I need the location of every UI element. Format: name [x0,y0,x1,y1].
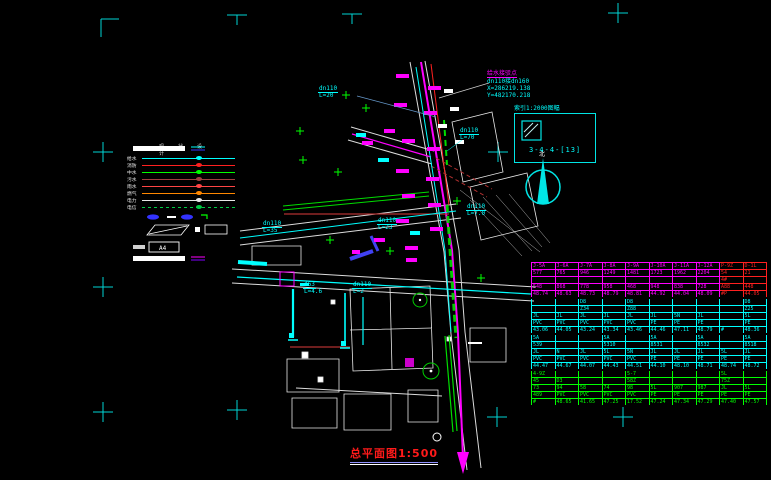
table-cell [673,370,697,378]
map-index-box: 索引1:2000图幅 3-4-4-[13] [514,103,596,163]
table-cell: PE [696,392,720,399]
table-cell [720,298,744,306]
power-cable-glow [350,236,378,259]
table-cell: 48.10 [673,363,697,371]
legend-item: 雨水 [127,183,235,190]
table-cell: A88 [720,284,744,291]
table-cell: 5A [602,334,626,342]
table-row: 5395310853185328518 [532,342,767,349]
buildings [252,112,538,430]
table-cell [720,313,744,320]
table-cell [626,334,650,342]
legend-item-label: 中水 [127,169,142,176]
table-cell: 43.06 [532,327,556,335]
table-cell: J-10A [649,263,673,270]
table-cell: 5L [602,349,626,356]
table-cell: J-12A [696,263,720,270]
table-cell: 5A [743,334,767,342]
legend-symbols: A4 [127,213,235,265]
table-cell: 1249 [602,270,626,277]
table-cell: JL [696,349,720,356]
table-cell [602,378,626,385]
micro-text-blobs [300,74,464,286]
table-cell: 44.92 [649,291,673,299]
table-cell: D8 [743,298,767,306]
table-cell: 5-7 [626,370,650,378]
table-row: 4-9Z5-75L [532,370,767,378]
legend-marker-dot [196,191,202,195]
table-cell: 539 [532,342,556,349]
legend-item-label: 电力 [127,197,142,204]
table-cell [555,298,579,306]
wall-row-icon [133,256,205,261]
table-cell: JL [579,313,603,320]
table-row: 5A5A5A5A5A [532,334,767,342]
node-data-table: J-5AJ-6AJ-7AJ-8AJ-9AJ-10AJ-11AJ-12AP-9ZD… [531,262,767,407]
table-cell: JL [602,313,626,320]
table-cell [720,306,744,313]
table-cell: 44.43 [602,363,626,371]
table-cell: PVC [579,320,603,327]
table-cell: PVC [579,356,603,363]
table-cell [743,370,767,378]
table-cell: 44.07 [579,363,603,371]
table-cell: 5L [743,385,767,392]
table-cell [673,378,697,385]
road-edges [232,61,536,470]
table-cell: 43.24 [579,327,603,335]
legend-item-label: 燃气 [127,190,142,197]
frame-row-icon: A4 [133,242,179,252]
table-cell: 548 [532,284,556,291]
legend-line-swatch [142,193,235,194]
table-cell: PE [743,392,767,399]
table-cell: JL [555,313,579,320]
table-cell [579,370,603,378]
table-cell: 48.81 [626,291,650,299]
table-cell: 47.57 [743,399,767,407]
table-cell: 43.34 [602,327,626,335]
legend-line-swatch [142,172,235,173]
cad-sheet[interactable]: 北 给水接驳点 dn110接dn160 X=286219.138 Y=48217… [0,0,771,480]
table-row: JLJLJLJLJLJL5NJL5L [532,313,767,320]
table-row: PVCPVCPVCPVCPVCPEPEPEPE [532,320,767,327]
table-cell: PVC [626,320,650,327]
table-cell: 8532 [696,342,720,349]
table-row: 548868778958468948838728A88448 [532,284,767,291]
table-cell: PVC [555,392,579,399]
connection-point-title: 给水接驳点 [487,70,517,78]
table-cell: 48.73 [579,291,603,299]
legend-line-swatch [142,179,235,180]
table-cell [579,334,603,342]
table-cell: 58 [579,385,603,392]
table-row: Z34Z88Z25 [532,306,767,313]
table-cell [696,306,720,313]
table-cell: 47.40 [720,399,744,407]
table-cell: 468 [626,284,650,291]
table-cell [743,277,767,284]
table-cell: PVC [579,392,603,399]
table-cell: J-7A [579,263,603,270]
table-cell: JL [673,349,697,356]
legend-item-label: 雨水 [127,183,142,190]
legend-marker-dot [196,205,202,209]
table-cell: 48.72 [743,363,767,371]
table-cell: 47.24 [649,399,673,407]
table-cell [532,298,556,306]
table-cell [579,378,603,385]
legend-item: 消防 [127,162,235,169]
coordinate-x: X=286219.138 [487,85,530,92]
table-cell: PVC [532,356,556,363]
table-row: 73945874985L907987JL5L [532,385,767,392]
ramp-row-icon [147,225,227,235]
drawing-title: 总平面图1:500 [350,445,438,465]
table-cell [579,277,603,284]
table-cell: 448 [743,284,767,291]
drawing-title-text: 总平面图1:500 [350,447,438,460]
table-cell: 44.05 [743,291,767,299]
table-cell: JL [743,349,767,356]
table-cell: 1723 [649,270,673,277]
table-cell: 5A [696,334,720,342]
table-row: 43.0644.0543.2443.3443.4644.4647.1148.79… [532,327,767,335]
table-row: 4# [532,277,767,284]
table-cell: 838 [673,284,697,291]
table-cell: Z34 [579,306,603,313]
table-row: #48.6541.6547.2517.5247.2447.3447.2947.4… [532,399,767,407]
table-cell: 54 [720,270,744,277]
table-cell: PE [696,356,720,363]
table-cell [649,298,673,306]
table-cell: PE [673,320,697,327]
table-cell: 868 [555,284,579,291]
table-cell: 987 [696,385,720,392]
table-cell [602,306,626,313]
table-cell: PE [720,392,744,399]
table-cell [743,378,767,385]
table-cell: 17.52 [626,399,650,407]
legend-road-row [127,143,235,157]
table-cell: 5A [532,334,556,342]
table-cell: 47.25 [602,399,626,407]
table-cell [649,378,673,385]
table-cell: PE [720,356,744,363]
table-cell: # [532,399,556,407]
legend-marker-dot [196,170,202,174]
table-cell: 4# [720,277,744,284]
table-cell [532,306,556,313]
table-cell: N [555,349,579,356]
legend-item: 电力 [127,197,235,204]
legend-item: 电信 [127,204,235,211]
table-cell: PVC [532,320,556,327]
table-cell: 21 [743,270,767,277]
legend: 现状设计 给水消防中水污水雨水燃气电力电信 A4 [127,143,235,265]
legend-marker-dot [196,163,202,167]
legend-item: 燃气 [127,190,235,197]
title-underline-2 [350,464,438,465]
map-index-frame: 3-4-4-[13] [514,113,596,163]
table-cell: J-5A [532,263,556,270]
table-row: 44.4744.6744.0744.4344.5144.1048.1048.71… [532,363,767,371]
table-cell: P-9Z [720,263,744,270]
table-cell: 728 [696,284,720,291]
table-cell [555,342,579,349]
table-cell: JL [532,349,556,356]
legend-item-label: 消防 [127,162,142,169]
table-cell [602,370,626,378]
table-row: JLNJL5L5NJLJLJL5LJL [532,349,767,356]
table-cell: 48.65 [555,399,579,407]
table-cell: 44.47 [532,363,556,371]
table-cell [555,334,579,342]
table-cell: PE [743,320,767,327]
table-cell [555,277,579,284]
table-cell: 8531 [649,342,673,349]
table-cell: PVC [626,356,650,363]
legend-line-swatch [142,200,235,201]
map-index-code: 3-4-4-[13] [529,146,581,154]
title-underline-1 [350,462,438,463]
table-row: 489PVCPVCPVCPVCPEPEPEPEPE [532,392,767,399]
pipe-size-note: dn110接dn160 [487,78,529,85]
table-cell: 48.74 [532,291,556,299]
table-cell: 8518 [743,342,767,349]
table-cell [673,298,697,306]
table-cell: 44.04 [673,291,697,299]
table-cell: 47.29 [696,399,720,407]
table-cell: 5310 [602,342,626,349]
table-cell: 1962 [673,270,697,277]
table-cell: 75Z [720,378,744,385]
table-cell: 47.34 [673,399,697,407]
table-cell: J-6A [555,263,579,270]
table-cell: PVC [602,392,626,399]
table-cell [720,342,744,349]
table-cell [602,277,626,284]
table-cell [649,370,673,378]
legend-item-label: 污水 [127,176,142,183]
slope-hatch [460,190,550,256]
table-cell: PVC [555,356,579,363]
table-cell: 48.74 [720,363,744,371]
table-cell [720,320,744,327]
table-cell [602,298,626,306]
table-cell: D8 [579,298,603,306]
table-cell: PVC [626,392,650,399]
table-cell: 43.46 [626,327,650,335]
table-cell [555,370,579,378]
table-cell [720,334,744,342]
table-cell [673,342,697,349]
table-cell: 48.63 [555,291,579,299]
table-cell: 44.67 [555,363,579,371]
table-cell: 44.10 [649,363,673,371]
table-cell: 489 [532,392,556,399]
table-cell: 958 [602,284,626,291]
legend-marker-dot [196,184,202,188]
table-cell: 48.79 [602,291,626,299]
table-cell: PE [673,356,697,363]
table-cell [649,306,673,313]
legend-line-swatch [142,158,235,159]
legend-item: 污水 [127,176,235,183]
table-cell [696,370,720,378]
table-cell: 5L [720,349,744,356]
node-table-grid: J-5AJ-6AJ-7AJ-8AJ-9AJ-10AJ-11AJ-12AP-9ZD… [531,262,767,407]
table-cell: PE [649,320,673,327]
table-row: 577765946124914811723196222045421 [532,270,767,277]
table-cell: 778 [579,284,603,291]
hatched-square-icon [522,121,541,140]
svg-text:A4: A4 [159,245,167,252]
table-cell: PVC [602,320,626,327]
table-cell: 58Z [626,378,650,385]
legend-marker-dot [196,177,202,181]
table-cell: Z25 [743,306,767,313]
table-cell [696,298,720,306]
coordinate-y: Y=482170.218 [487,92,530,99]
table-row: 45D358Z75Z [532,378,767,385]
table-cell: 4-9Z [532,370,556,378]
table-cell: D8 [626,298,650,306]
table-cell [579,342,603,349]
table-cell [532,277,556,284]
table-cell: JL [720,385,744,392]
manhole-circles [413,293,441,441]
table-cell: PE [649,356,673,363]
table-cell: J-8A [602,263,626,270]
table-cell: 907 [673,385,697,392]
table-cell [626,342,650,349]
table-cell: 5A [649,334,673,342]
table-cell: 44.51 [626,363,650,371]
table-cell: PE [649,392,673,399]
table-cell: PVC [602,356,626,363]
table-cell: PE [673,392,697,399]
legend-line-swatch [142,207,235,208]
table-cell: JL [532,313,556,320]
table-cell [696,378,720,385]
legend-item-label: 电信 [127,204,142,211]
table-cell: PVC [555,320,579,327]
table-cell: 5N [673,313,697,320]
legend-item: 中水 [127,169,235,176]
design-water-pipes [237,67,531,348]
legend-marker-dot [196,198,202,202]
table-cell: JL [626,313,650,320]
table-cell: JL [649,349,673,356]
table-cell: J-11A [673,263,697,270]
table-cell: 1481 [626,270,650,277]
table-row: D8D8D8 [532,298,767,306]
legend-line-swatch [142,186,235,187]
table-cell: 48.79 [696,327,720,335]
table-cell: 5L [743,313,767,320]
table-cell: 74 [602,385,626,392]
table-cell: # [720,327,744,335]
table-cell: 946 [579,270,603,277]
table-cell: 73 [532,385,556,392]
table-cell: 44.05 [555,327,579,335]
table-cell: 48.71 [696,363,720,371]
table-row: PVCPVCPVCPVCPVCPEPEPEPEPE [532,356,767,363]
map-index-label: 索引1:2000图幅 [514,105,560,112]
table-cell: 5L [649,385,673,392]
drawing-canvas[interactable] [0,0,771,480]
table-cell: 48.36 [743,327,767,335]
table-cell: #P [720,291,744,299]
table-cell: 47.11 [673,327,697,335]
tree-symbols [296,91,485,282]
legend-line-swatch [142,165,235,166]
north-arrow [526,158,560,204]
table-cell: 45 [532,378,556,385]
greenbelt-lines [283,120,457,432]
table-cell: Z88 [626,306,650,313]
table-cell: D3 [555,378,579,385]
table-cell: 2204 [696,270,720,277]
table-cell: J-9A [626,263,650,270]
table-cell: 5L [720,370,744,378]
table-row: 48.7448.6348.7348.7948.8144.9244.0448.09… [532,291,767,299]
table-cell: JL [649,313,673,320]
table-cell: 577 [532,270,556,277]
table-cell: 948 [649,284,673,291]
table-cell [649,277,673,284]
connection-point-note: 给水接驳点 dn110接dn160 X=286219.138 Y=482170.… [487,70,530,99]
table-cell: 5N [626,349,650,356]
table-cell [626,277,650,284]
table-cell: JL [579,349,603,356]
table-cell: PE [743,356,767,363]
table-cell: 44.46 [649,327,673,335]
table-cell: PE [696,320,720,327]
table-row: J-5AJ-6AJ-7AJ-8AJ-9AJ-10AJ-11AJ-12AP-9ZD… [532,263,767,270]
table-cell: JL [696,313,720,320]
table-cell: 98 [626,385,650,392]
table-cell [673,277,697,284]
table-cell: 48.09 [696,291,720,299]
table-cell [673,306,697,313]
table-cell [673,334,697,342]
table-cell [696,277,720,284]
table-cell: 41.65 [579,399,603,407]
valve-well-row-icon [147,214,207,219]
table-cell: 94 [555,385,579,392]
table-cell [555,306,579,313]
table-cell: D-1L [743,263,767,270]
table-cell: 765 [555,270,579,277]
